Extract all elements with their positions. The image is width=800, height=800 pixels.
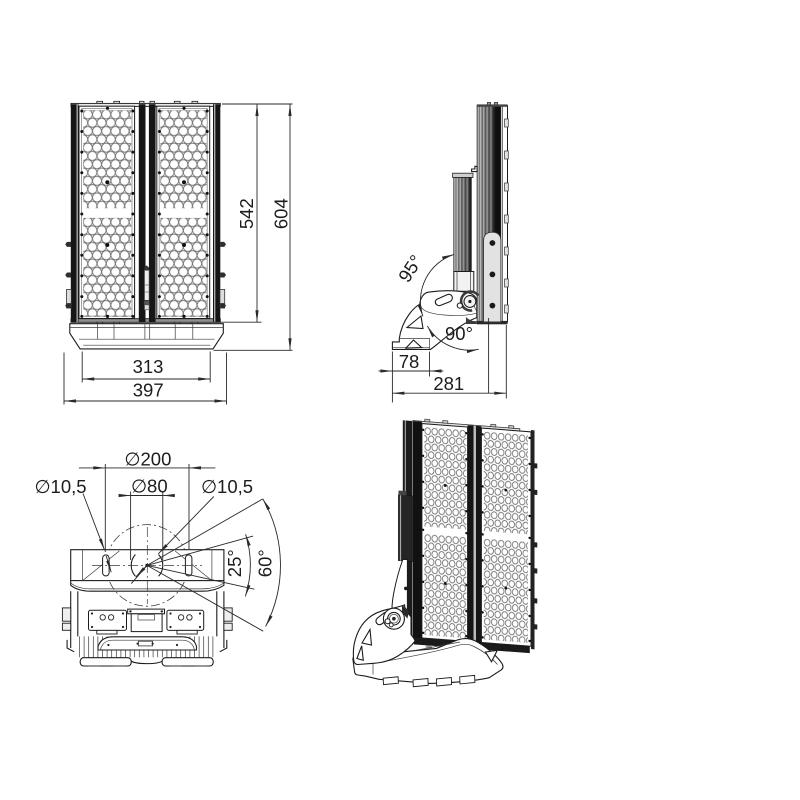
svg-text:25°: 25° bbox=[224, 549, 245, 577]
svg-text:∅10,5: ∅10,5 bbox=[201, 476, 253, 497]
svg-text:∅10,5: ∅10,5 bbox=[34, 476, 86, 497]
svg-text:604: 604 bbox=[271, 198, 292, 229]
svg-text:90°: 90° bbox=[445, 323, 473, 344]
svg-text:∅200: ∅200 bbox=[124, 448, 171, 469]
svg-text:313: 313 bbox=[133, 356, 164, 377]
svg-text:397: 397 bbox=[133, 380, 164, 401]
svg-text:60°: 60° bbox=[255, 549, 276, 577]
svg-text:78: 78 bbox=[399, 351, 420, 372]
svg-text:∅80: ∅80 bbox=[131, 476, 168, 497]
svg-text:542: 542 bbox=[236, 198, 257, 229]
svg-text:281: 281 bbox=[433, 373, 464, 394]
